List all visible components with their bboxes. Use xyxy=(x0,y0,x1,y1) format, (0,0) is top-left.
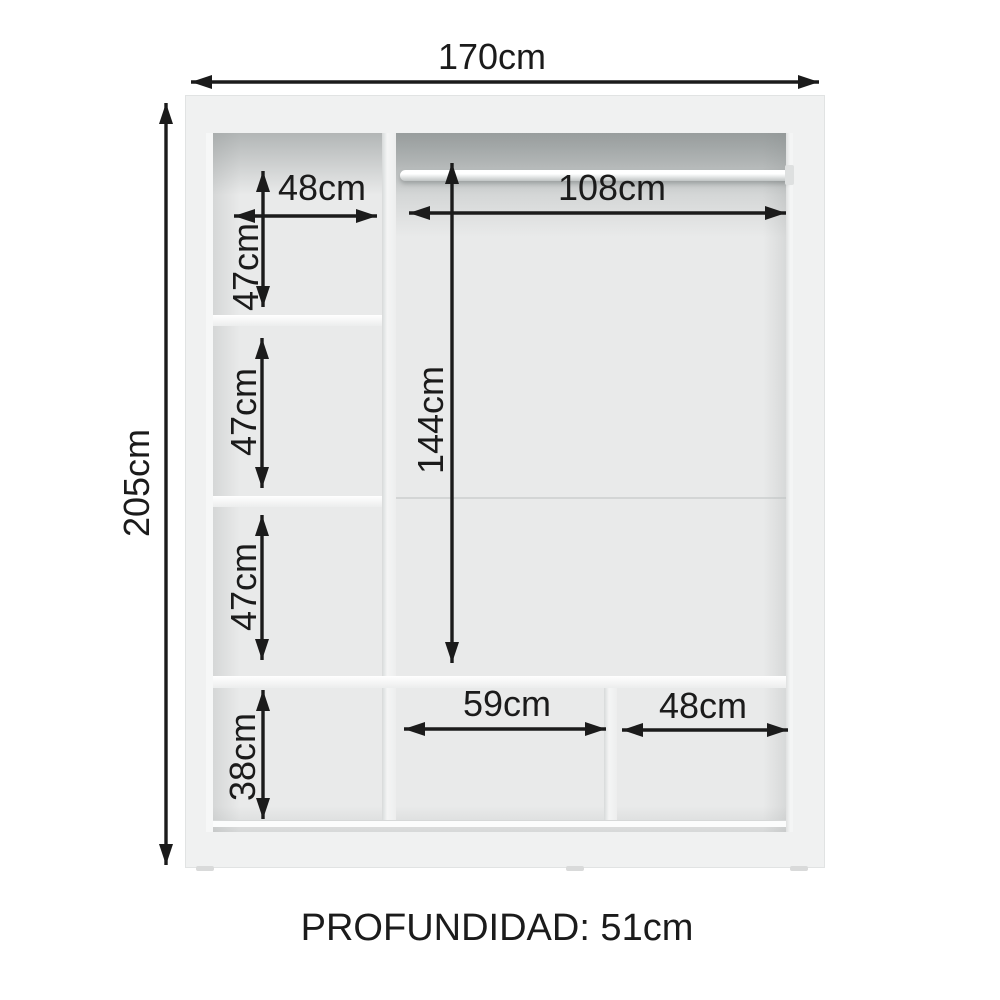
shelf-1 xyxy=(213,315,382,326)
interior-right-wall xyxy=(786,133,793,832)
bottom-divider-left xyxy=(382,688,396,820)
dim-label-compartment-2-height: 47cm xyxy=(226,368,262,456)
depth-label: PROFUNDIDAD: 51cm xyxy=(301,909,694,947)
wardrobe-interior xyxy=(206,133,793,832)
dim-label-compartment-3-height: 47cm xyxy=(226,543,262,631)
dim-label-left-column-width: 48cm xyxy=(278,170,366,206)
shelf-2 xyxy=(213,496,382,507)
dim-label-bottom-right-width: 48cm xyxy=(659,688,747,724)
foot-mark xyxy=(566,866,584,871)
dim-label-hanging-width: 108cm xyxy=(558,170,666,206)
vertical-divider-main xyxy=(382,133,396,678)
dim-label-total-width: 170cm xyxy=(438,39,546,75)
foot-mark xyxy=(196,866,214,871)
interior-left-wall xyxy=(206,133,213,832)
back-panel-seam xyxy=(396,497,786,499)
dim-label-total-height: 205cm xyxy=(119,429,155,537)
foot-mark xyxy=(790,866,808,871)
wardrobe-dimension-diagram: 170cm 205cm 48cm 47cm 47cm 47cm 38cm 108… xyxy=(0,0,1000,1000)
dim-label-hanging-height: 144cm xyxy=(413,366,449,474)
interior-floor xyxy=(213,820,786,827)
dim-label-compartment-1-height: 47cm xyxy=(228,223,264,311)
dim-label-bottom-middle-width: 59cm xyxy=(463,686,551,722)
dim-label-bottom-left-height: 38cm xyxy=(225,713,261,801)
hanging-rod-bracket xyxy=(785,165,794,185)
bottom-divider-right xyxy=(604,688,617,820)
